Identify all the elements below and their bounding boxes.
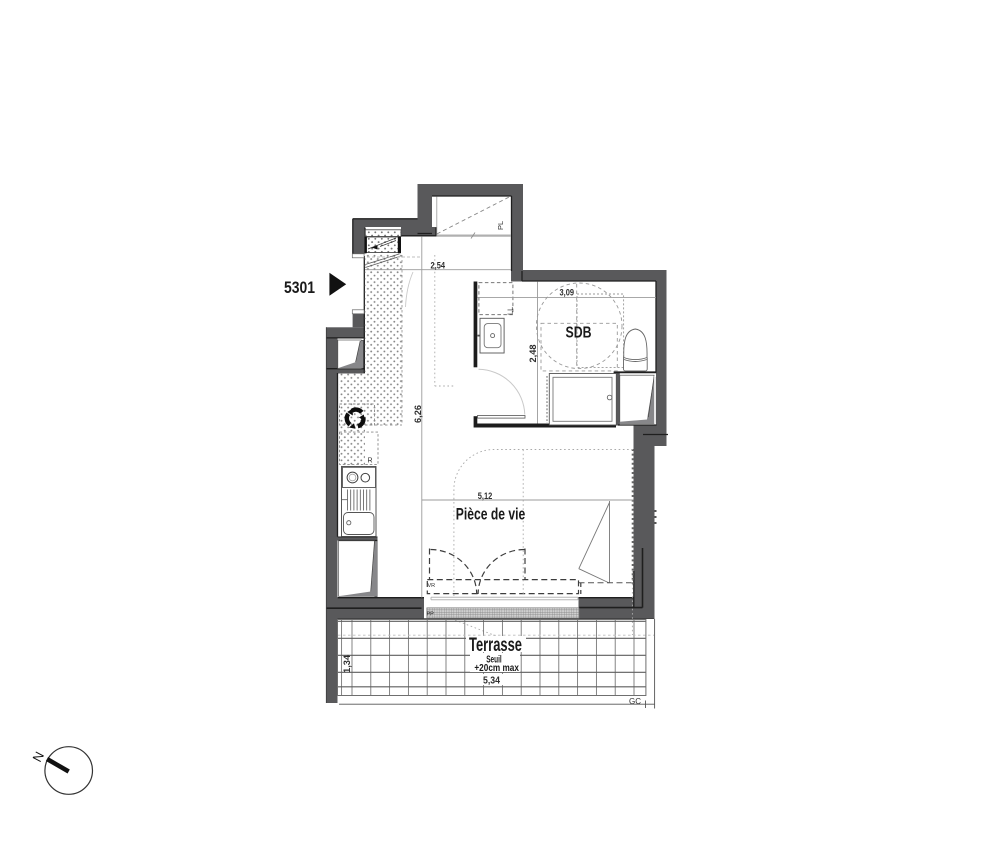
svg-text:VR: VR	[428, 583, 436, 589]
svg-text:SDB: SDB	[566, 325, 592, 342]
svg-text:+20cm max: +20cm max	[474, 663, 519, 674]
svg-text:6,26: 6,26	[413, 405, 423, 423]
svg-text:R: R	[368, 458, 373, 465]
svg-text:GC: GC	[629, 696, 641, 706]
svg-text:5301: 5301	[284, 278, 315, 297]
svg-text:3,09: 3,09	[560, 287, 575, 297]
svg-text:5,12: 5,12	[478, 491, 493, 501]
svg-text:1,34: 1,34	[342, 655, 352, 673]
svg-text:LL: LL	[506, 307, 515, 315]
svg-text:PP: PP	[427, 612, 435, 618]
svg-text:2,54: 2,54	[431, 260, 446, 270]
svg-text:5,34: 5,34	[483, 674, 500, 686]
svg-text:Pièce de vie: Pièce de vie	[456, 505, 526, 523]
svg-text:Terrasse: Terrasse	[469, 635, 522, 656]
svg-text:2,48: 2,48	[528, 345, 538, 363]
svg-text:PL: PL	[496, 221, 505, 230]
